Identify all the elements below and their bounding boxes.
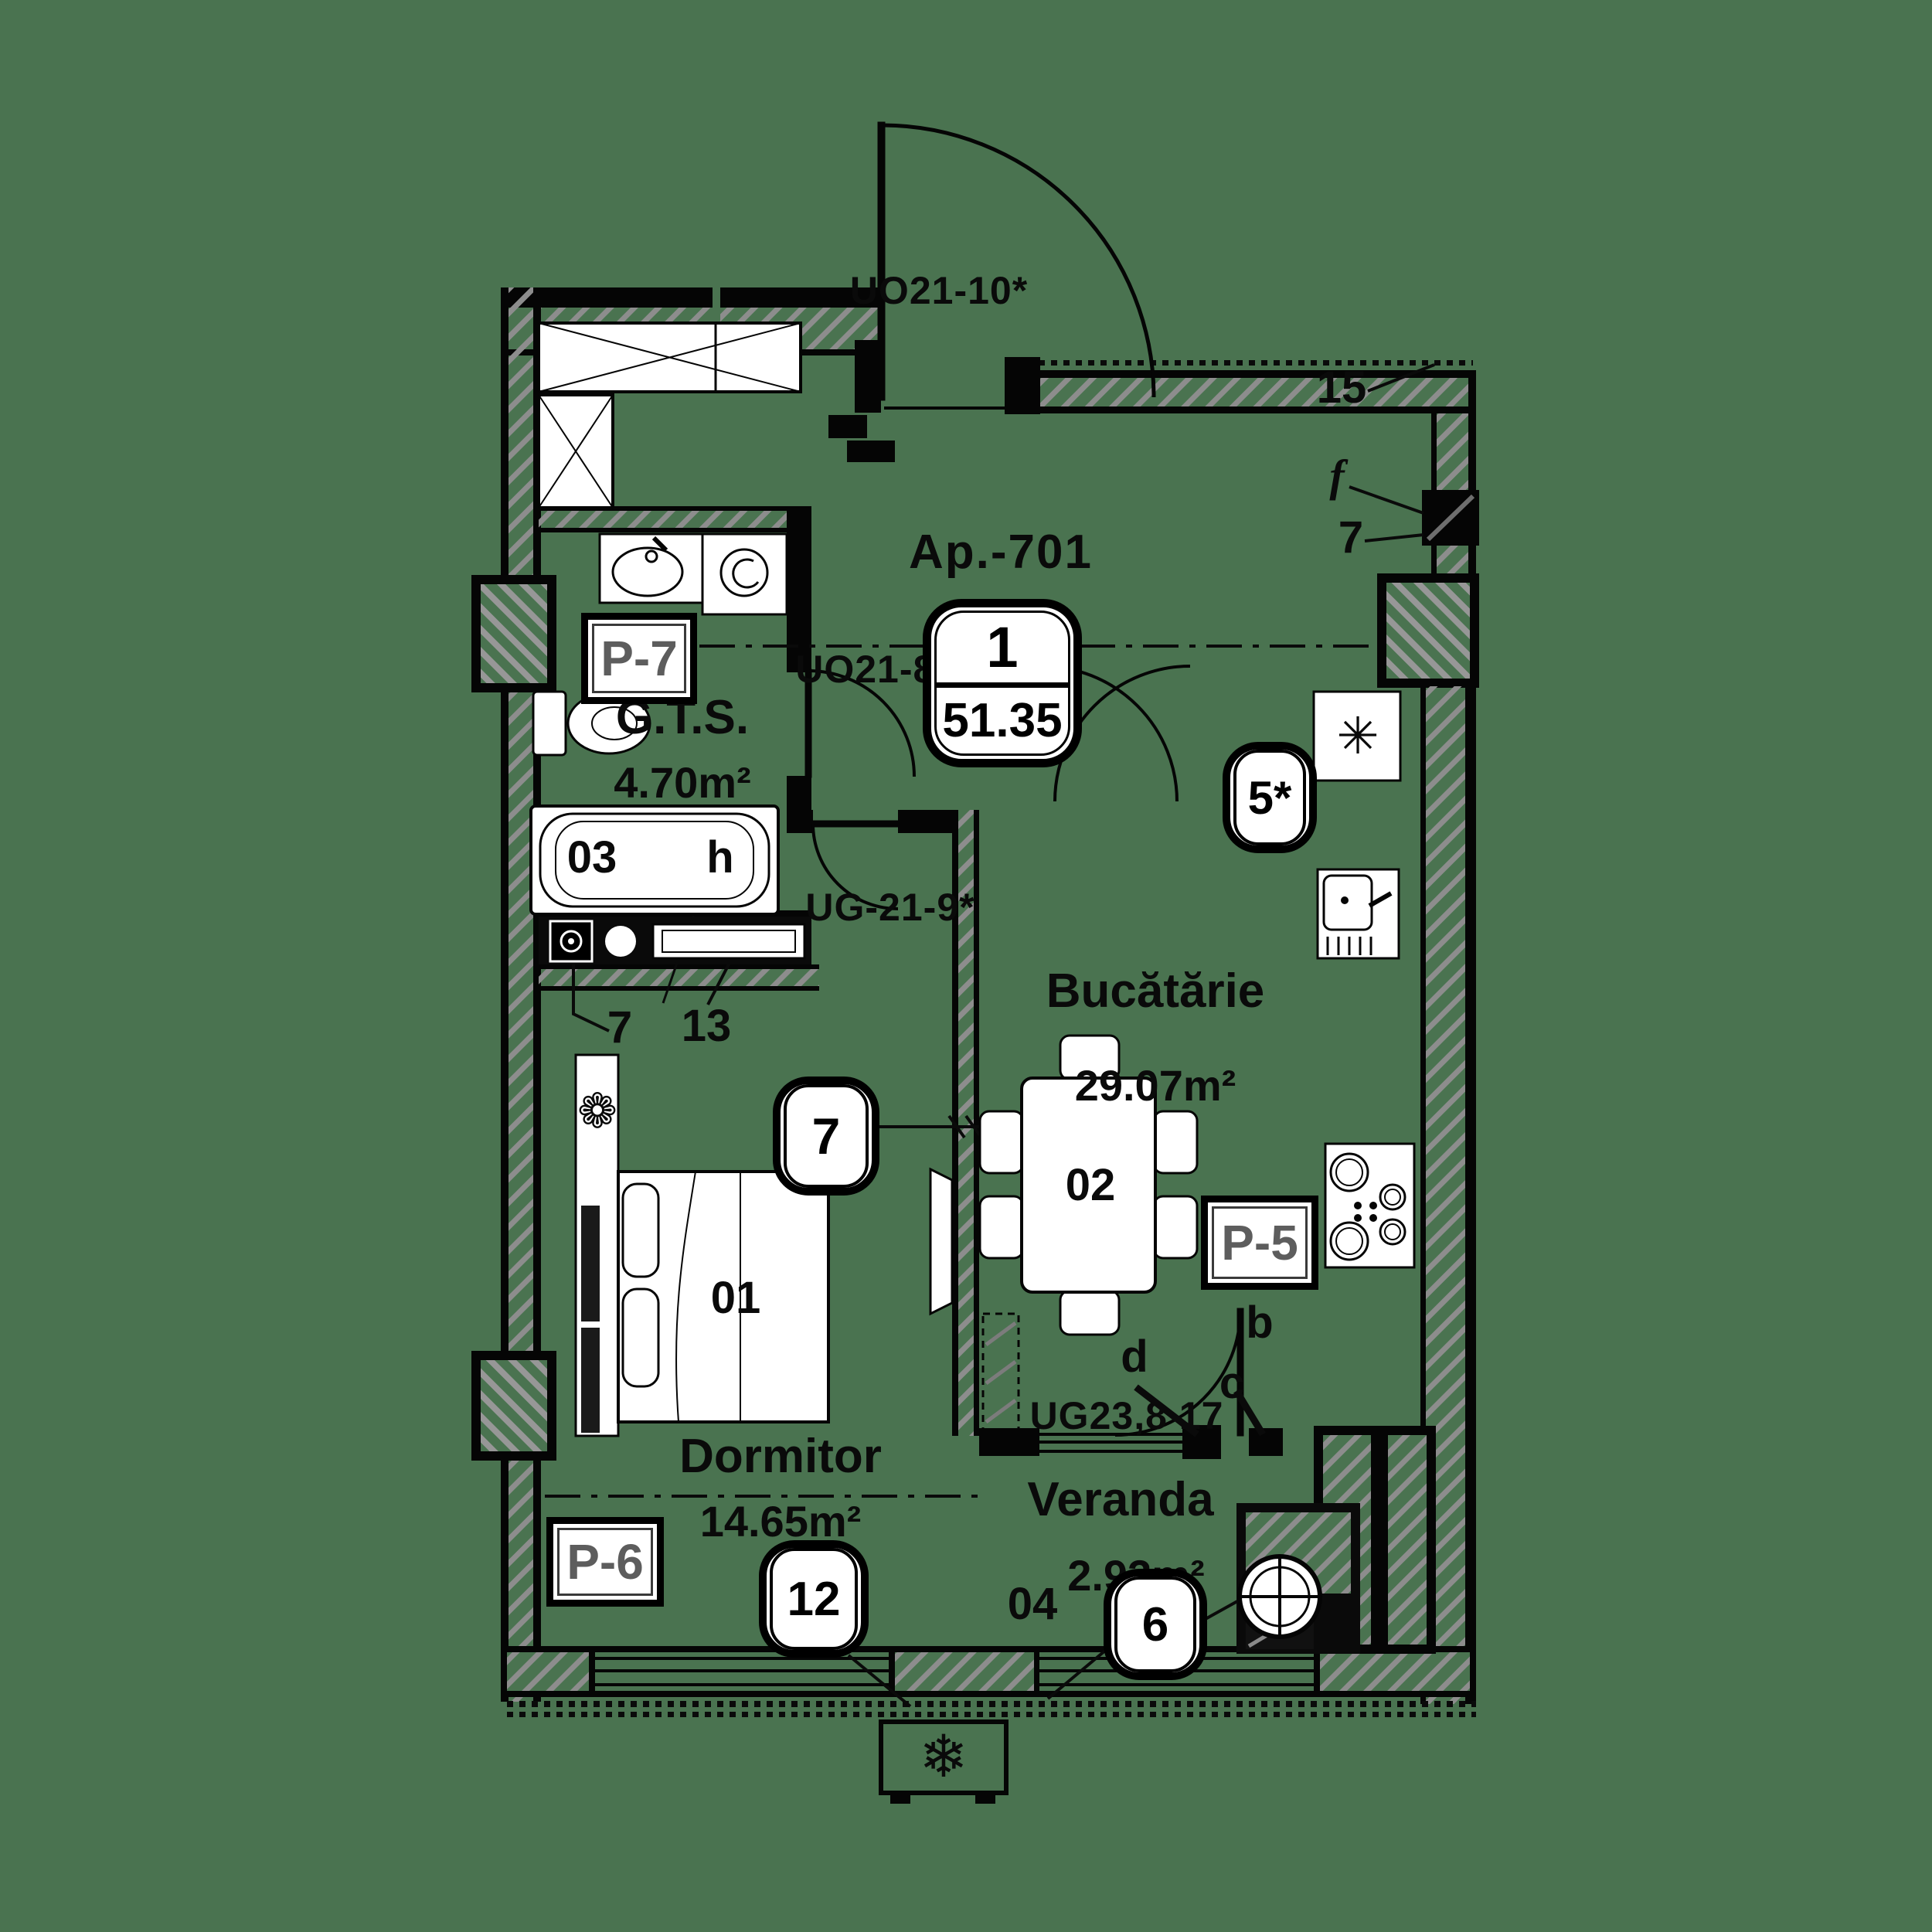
unit-area-badge: 1 51.35 (923, 599, 1082, 767)
plant-icon: ❁ (572, 1087, 623, 1137)
floor-plan: Ap.-701 1 51.35 UO21-10* UO21-8* UG-21-9… (0, 0, 1932, 1932)
bedroom-window-marker: 12 (759, 1540, 869, 1658)
bathtub-mark: h (697, 835, 743, 882)
bathroom-area: 4.70m² (601, 760, 764, 806)
bedroom-door-leaf (813, 821, 898, 827)
entrance-door-leaf (878, 122, 885, 400)
callout-c: c (1210, 1360, 1253, 1407)
kitchen-area: 29.07m² (1028, 1063, 1283, 1109)
kitchen-panel: P-5 (1201, 1196, 1318, 1290)
towel-radiator (653, 924, 804, 958)
table-id: 02 (1057, 1162, 1124, 1209)
bedroom-area: 14.65m² (665, 1499, 896, 1545)
leader-7-right (1365, 535, 1423, 541)
fridge-icon: ✳ (1331, 709, 1385, 763)
callout-d: d (1113, 1334, 1156, 1381)
bed-id: 01 (703, 1275, 768, 1322)
bathroom-panel: P-7 (581, 613, 697, 704)
callout-b: b (1238, 1300, 1281, 1347)
wardrobe-vertical (539, 395, 613, 508)
tv (930, 1169, 952, 1314)
veranda-door-label: UG23,8 17 (1019, 1396, 1235, 1437)
ventilation-fan (1240, 1556, 1320, 1637)
veranda-name: Veranda (1012, 1475, 1229, 1525)
veranda-floor-id: 04 (1000, 1581, 1065, 1628)
washing-machine (702, 534, 787, 614)
bathroom-floor-drain (550, 921, 636, 961)
leader-f (1349, 487, 1423, 513)
kitchen-radiator (983, 1314, 1019, 1431)
bedroom-panel: P-6 (546, 1517, 664, 1607)
callout-f: f (1315, 453, 1359, 500)
wash-basin (600, 534, 702, 603)
callout-radiator: 13 (674, 1003, 739, 1050)
unit-count: 1 (937, 613, 1068, 682)
ac-snowflake-icon: ❄ (909, 1726, 978, 1788)
bedroom-door-label: UG-21-9* (798, 887, 983, 928)
bathtub-id: 03 (561, 835, 623, 882)
callout-drain: 7 (597, 1005, 643, 1052)
callout-7-window: 7 (1329, 515, 1372, 562)
entrance-door-label: UO21-10* (838, 270, 1039, 311)
apartment-title: Ap.-701 (889, 527, 1113, 577)
kitchen-name: Bucătărie (1028, 966, 1283, 1016)
unit-total-area: 51.35 (937, 682, 1068, 753)
stove (1325, 1144, 1414, 1267)
bedroom-door-marker: 7 (773, 1077, 879, 1196)
entrance-door-swing (882, 125, 1154, 397)
veranda-window-marker: 6 (1104, 1569, 1207, 1680)
bedroom-name: Dormitor (657, 1431, 904, 1481)
callout-15: 15 (1312, 365, 1371, 412)
kitchen-sink (1318, 869, 1399, 958)
wardrobe-horizontal (539, 323, 801, 392)
kitchen-window-marker: 5* (1223, 742, 1317, 853)
